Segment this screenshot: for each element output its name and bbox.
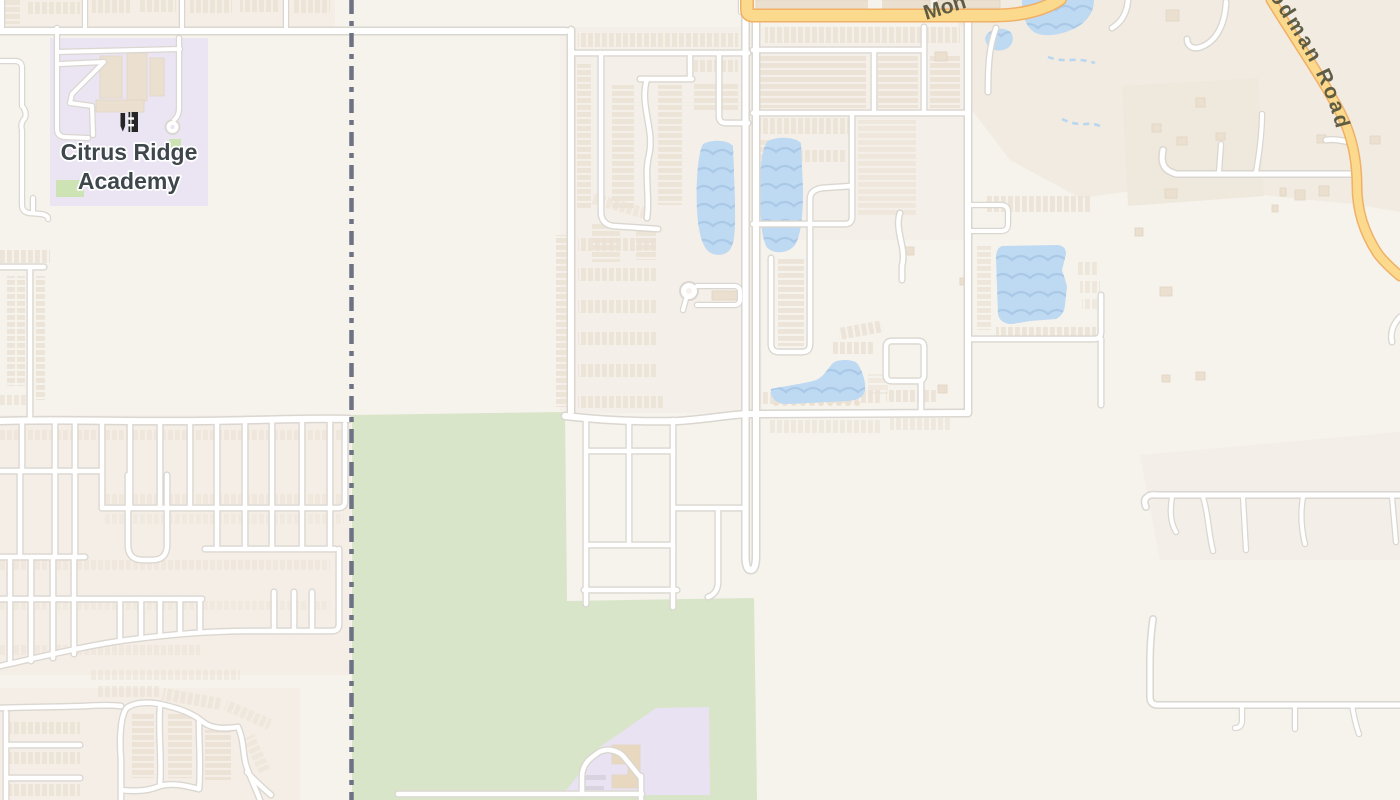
svg-text:Citrus Ridge: Citrus Ridge	[61, 139, 198, 165]
svg-text:Academy: Academy	[78, 168, 180, 194]
